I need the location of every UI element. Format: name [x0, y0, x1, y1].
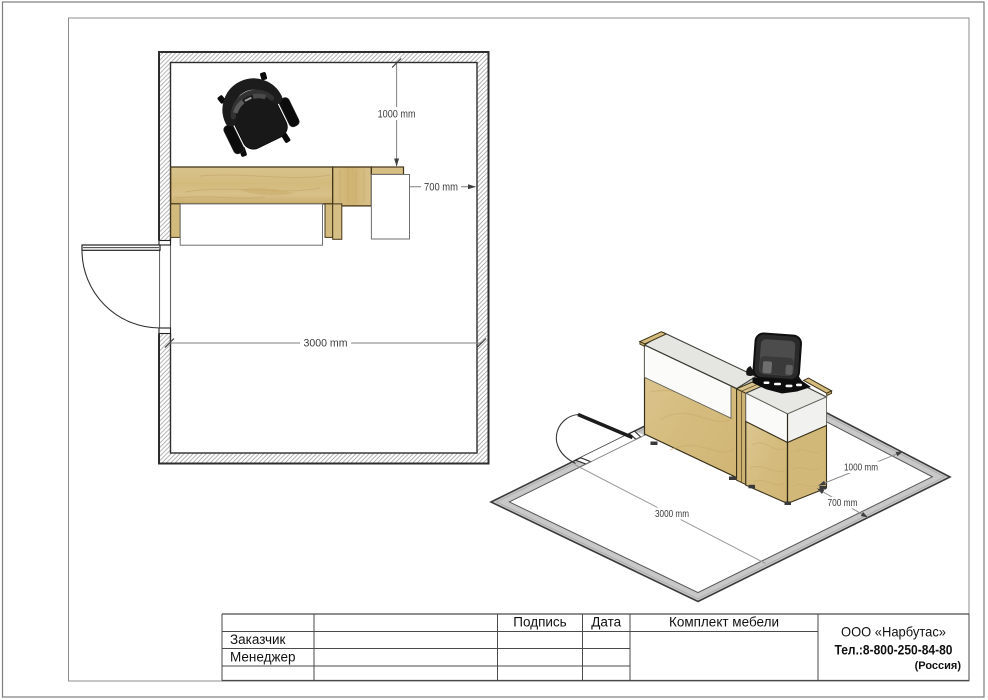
svg-text:(Россия): (Россия) — [915, 660, 962, 672]
svg-text:3000 mm: 3000 mm — [655, 509, 689, 520]
svg-text:Заказчик: Заказчик — [230, 632, 286, 647]
svg-text:Комплект мебели: Комплект мебели — [669, 615, 779, 630]
svg-text:Подпись: Подпись — [513, 615, 566, 630]
svg-text:700 mm: 700 mm — [424, 182, 458, 194]
svg-text:3000 mm: 3000 mm — [304, 338, 348, 350]
svg-text:Менеджер: Менеджер — [230, 650, 296, 665]
svg-text:700 mm: 700 mm — [828, 498, 858, 509]
svg-text:ООО «Нарбутас»: ООО «Нарбутас» — [841, 624, 946, 640]
svg-text:1000 mm: 1000 mm — [378, 109, 416, 121]
svg-text:1000 mm: 1000 mm — [844, 463, 878, 474]
svg-text:Дата: Дата — [591, 615, 621, 630]
svg-text:Тел.:8-800-250-84-80: Тел.:8-800-250-84-80 — [835, 643, 953, 658]
